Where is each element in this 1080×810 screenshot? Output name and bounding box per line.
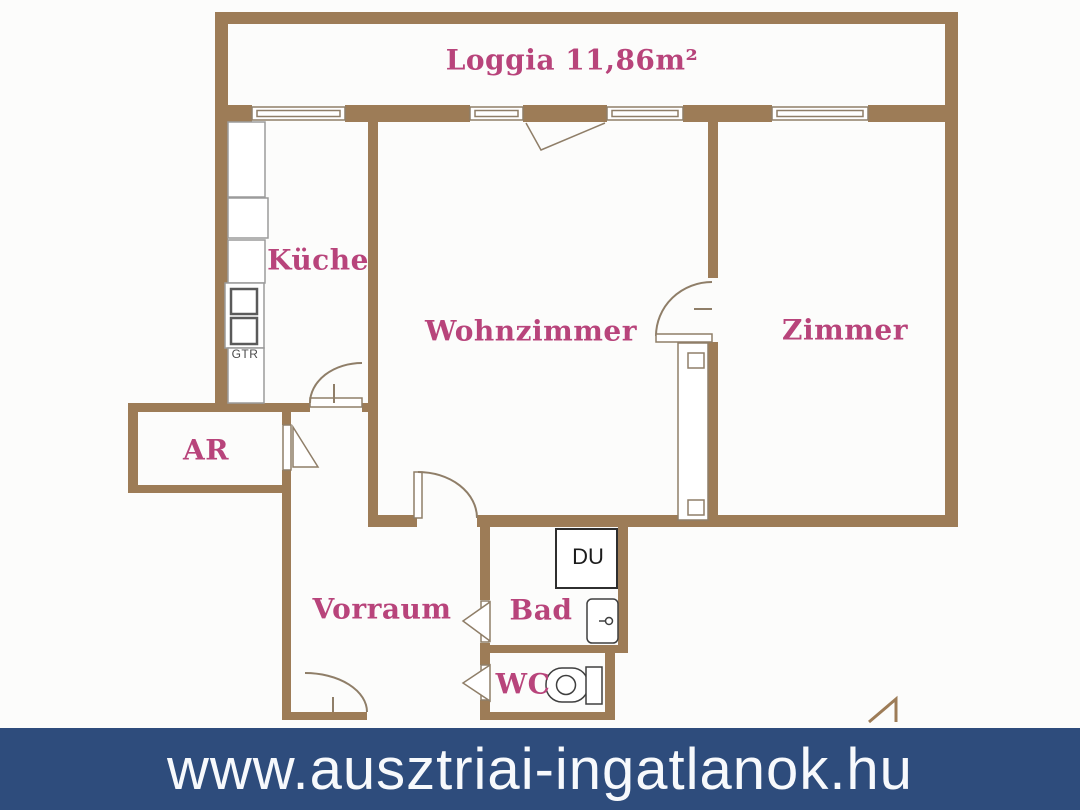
window: [252, 107, 345, 120]
wall-segment: [480, 712, 615, 720]
wall-segment: [362, 403, 378, 412]
wall-segment: [225, 105, 252, 122]
sink: [587, 599, 618, 643]
vorraum-label: Vorraum: [313, 593, 452, 626]
wall-segment: [480, 527, 490, 600]
website-url: www.ausztriai-ingatlanok.hu: [167, 736, 913, 803]
bad-label: Bad: [510, 594, 573, 627]
wall-segment: [477, 515, 958, 527]
wall-segment: [215, 12, 228, 412]
wall-segment: [128, 403, 138, 493]
toilet: [546, 667, 602, 704]
wall-segment: [708, 342, 718, 520]
window: [607, 107, 683, 120]
balcony-door-swing: [526, 123, 605, 150]
loggia-label: Loggia 11,86m²: [446, 44, 699, 77]
boiler-box: [231, 289, 257, 314]
wc-door: [463, 665, 490, 701]
wall-segment: [708, 110, 718, 278]
kitchen-unit: [228, 240, 265, 283]
kitchen-door: [310, 363, 362, 407]
kitchen-unit: [228, 198, 268, 238]
wall-segment: [282, 470, 291, 720]
footer-banner: www.ausztriai-ingatlanok.hu: [0, 728, 1080, 810]
wall-segment: [368, 515, 417, 527]
wall-segment: [523, 105, 607, 122]
kueche-label: Küche: [267, 244, 369, 277]
storage-door: [283, 425, 318, 470]
wall-segment: [215, 12, 958, 24]
wall-segment: [345, 105, 470, 122]
zimmer-door: [656, 282, 712, 342]
wall-segment: [605, 653, 615, 712]
wc-label: WC: [496, 668, 551, 701]
wall-segment: [480, 643, 490, 665]
wall-segment: [490, 645, 628, 653]
wall-segment: [128, 403, 310, 412]
cropped-door-swing: [869, 699, 896, 722]
wall-segment: [128, 485, 290, 493]
window: [772, 107, 868, 120]
wardrobe: [678, 343, 708, 520]
wall-segment: [282, 412, 291, 425]
boiler-box: [231, 318, 257, 344]
floor-plan-page: Loggia 11,86m² Küche Wohnzimmer Zimmer A…: [0, 0, 1080, 810]
boiler-label: GTR: [232, 347, 259, 361]
window: [470, 107, 523, 120]
wall-segment: [618, 527, 628, 652]
entrance-door: [305, 673, 367, 712]
wohnzimmer-label: Wohnzimmer: [425, 315, 637, 348]
wall-segment: [945, 12, 958, 525]
wall-segment: [282, 712, 367, 720]
wall-segment: [683, 105, 772, 122]
ar-label: AR: [183, 434, 229, 467]
kitchen-unit: [228, 122, 265, 197]
living-room-door: [414, 472, 477, 518]
wall-segment: [868, 105, 945, 122]
bathroom-door: [463, 601, 490, 642]
zimmer-label: Zimmer: [782, 314, 908, 347]
wall-segment: [368, 110, 378, 520]
floor-plan: Loggia 11,86m² Küche Wohnzimmer Zimmer A…: [0, 0, 1080, 728]
shower-label: DU: [572, 544, 604, 570]
